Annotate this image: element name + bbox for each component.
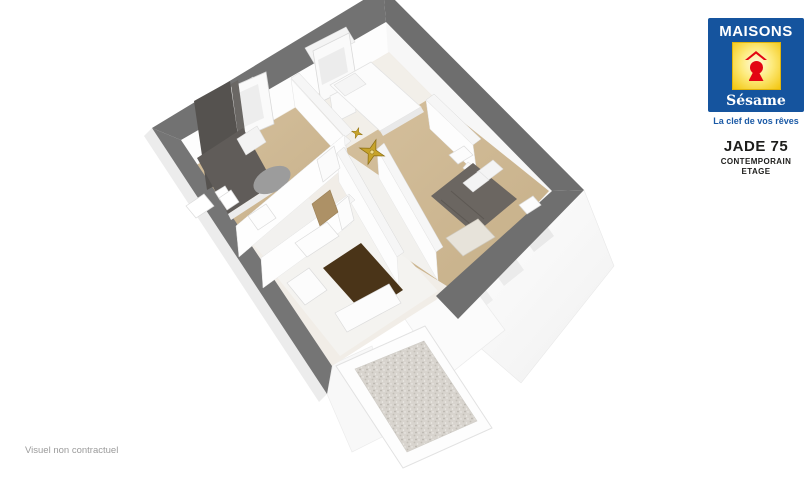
floor-plan-svg	[0, 0, 660, 480]
brand-block: MAISONS Sésame La clef de vos rêves JADE…	[703, 18, 809, 176]
brand-name-top: MAISONS	[719, 23, 793, 40]
model-level: ETAGE	[703, 167, 809, 176]
page: MAISONS Sésame La clef de vos rêves JADE…	[0, 0, 811, 480]
floor-plan-image	[0, 0, 660, 480]
model-name: JADE 75	[703, 138, 809, 155]
brand-logo: MAISONS Sésame	[708, 18, 804, 112]
brand-name-bottom: Sésame	[726, 93, 786, 109]
roof-icon	[745, 51, 767, 60]
model-info: JADE 75 CONTEMPORAIN ETAGE	[703, 138, 809, 176]
model-style: CONTEMPORAIN	[703, 157, 809, 166]
disclaimer-text: Visuel non contractuel	[25, 445, 118, 456]
keyhole-badge	[732, 42, 781, 90]
brand-tagline: La clef de vos rêves	[703, 116, 809, 126]
